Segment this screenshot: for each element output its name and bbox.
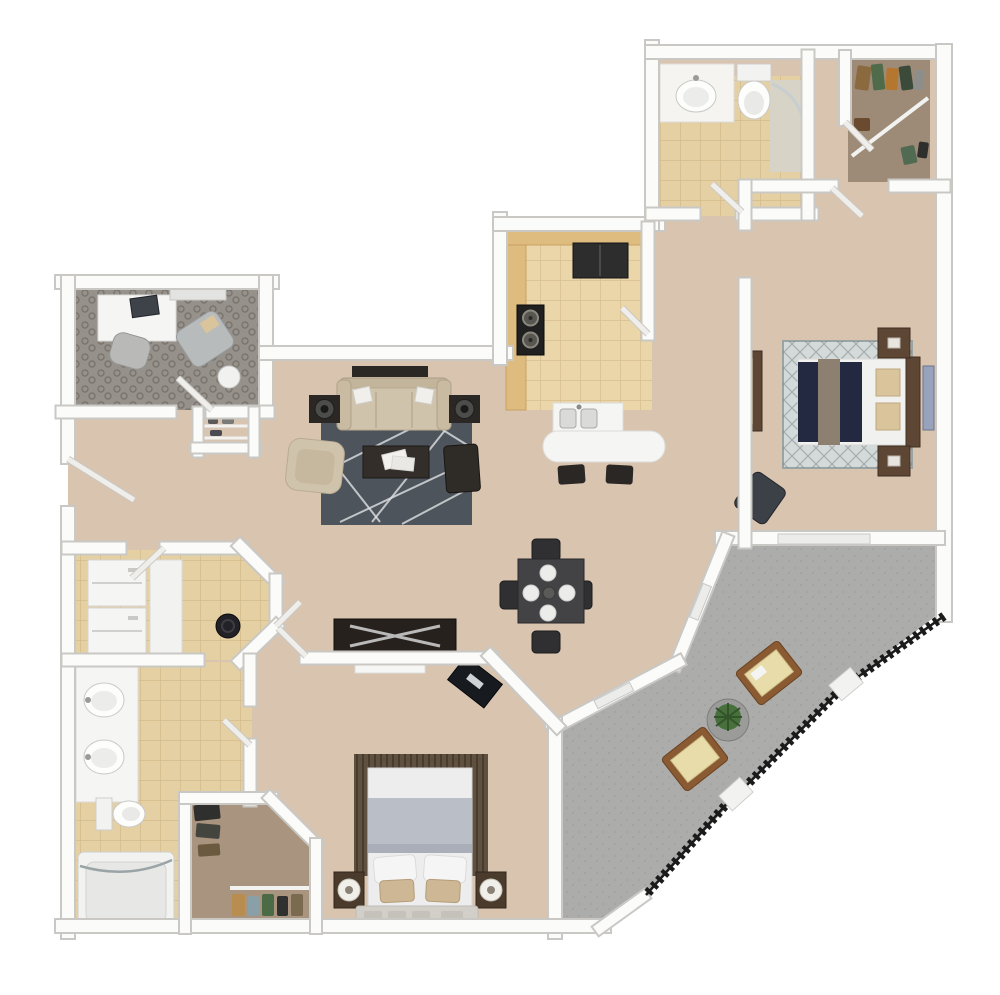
faucet	[693, 75, 699, 81]
place-setting	[559, 585, 575, 601]
master-closet-clothes-item	[277, 896, 288, 916]
dining-chair-south	[532, 631, 560, 653]
closet2-clothes-item	[913, 70, 925, 91]
bedroom2-pillow	[876, 369, 900, 396]
water-closet-toilet	[216, 614, 240, 638]
burner-center	[529, 316, 533, 320]
dryer-handle	[128, 616, 138, 620]
place-setting	[540, 605, 556, 621]
vanity-sink-basin	[91, 748, 117, 768]
kitchen-sink-basin	[581, 409, 597, 428]
kitchen-faucet	[577, 405, 582, 410]
master-bed-blanket	[368, 798, 472, 848]
master-pillow-accent	[379, 879, 414, 903]
master-closet-clothes-item	[232, 894, 245, 916]
table-lamp-finial	[487, 886, 495, 894]
nightstand-knob	[888, 456, 900, 466]
master-closet-clothes-item	[195, 823, 220, 839]
toilet2-seat	[744, 91, 764, 115]
armchair-seat	[294, 448, 335, 486]
master-closet-clothes-item	[291, 894, 303, 916]
bar-stool	[605, 464, 633, 484]
speaker-right-cone	[461, 405, 469, 413]
bedroom2-headboard	[906, 357, 920, 447]
bedroom2-window	[778, 534, 870, 544]
sofa-console-table	[352, 366, 428, 377]
master-closet-clothes-item	[193, 803, 221, 822]
sofa-pillow	[353, 386, 373, 404]
kitchen-sink-basin	[560, 409, 576, 428]
magazine	[391, 456, 414, 471]
vanity-sink-basin	[91, 691, 117, 711]
faucet	[85, 754, 91, 760]
ottoman-chair	[443, 444, 480, 493]
floor-plan-svg	[0, 0, 1000, 995]
computer-monitor	[130, 295, 159, 318]
master-pillow-accent	[425, 879, 460, 903]
side-table	[218, 366, 240, 388]
linen-items-item	[210, 430, 222, 436]
nightstand-knob	[888, 338, 900, 348]
closet2-clothes-item	[885, 68, 899, 91]
bedroom2-bed-runner	[818, 359, 840, 445]
toilet2-tank	[737, 64, 771, 81]
sofa-arm-right	[437, 380, 451, 430]
wall-art	[923, 366, 934, 430]
air-vent	[170, 289, 226, 300]
master-closet-clothes-item	[198, 843, 221, 857]
table-lamp-finial	[345, 886, 353, 894]
floor-plan-image	[0, 0, 1000, 995]
dining-chair-north	[532, 539, 560, 561]
bedroom2-pillow	[876, 403, 900, 430]
master-bed-blanket-fold	[368, 844, 472, 853]
place-setting	[523, 585, 539, 601]
faucet	[85, 697, 91, 703]
master-closet-clothes-item	[248, 896, 259, 916]
toilet-seat	[122, 807, 140, 821]
master-closet-clothes-item	[262, 894, 274, 916]
bath2-sink-basin	[683, 87, 709, 107]
sofa-pillow	[415, 387, 434, 405]
breakfast-bar	[543, 431, 665, 462]
toilet-tank	[96, 798, 112, 830]
speaker-left-cone	[321, 405, 329, 413]
place-setting	[540, 565, 556, 581]
centerpiece	[543, 587, 555, 599]
burner-center	[529, 338, 533, 342]
bar-stool	[557, 464, 585, 485]
laundry-cabinet	[150, 560, 182, 654]
